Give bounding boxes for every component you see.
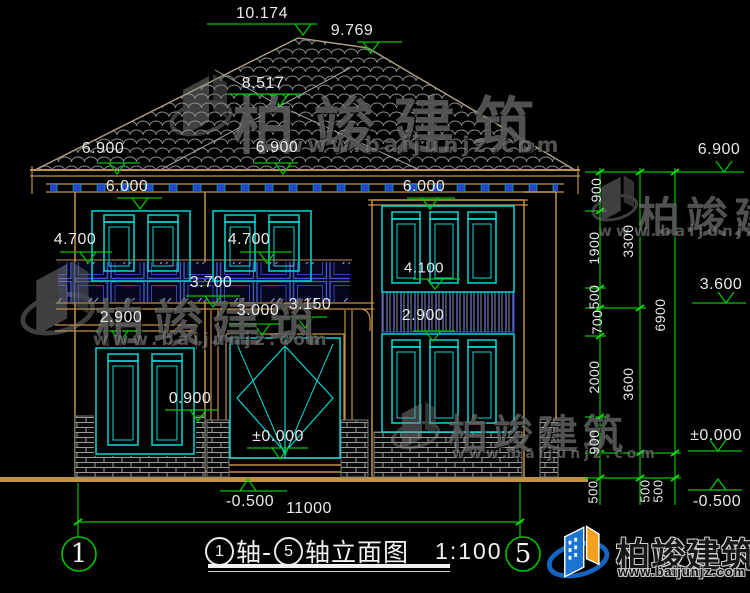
elevation-label-6000-right: 6.000 xyxy=(403,179,446,195)
elevation-label-eave-right: 6.900 xyxy=(698,142,741,158)
elevation-label-zero-right: ±0.000 xyxy=(690,428,742,444)
elevation-label-eave-mid: 6.900 xyxy=(256,140,299,156)
title-axis-bubble-1: 1 xyxy=(205,537,234,566)
dim-label-500d: 500 xyxy=(652,479,665,502)
elevation-label-3600-right: 3.600 xyxy=(700,277,743,293)
brand-logo-icon xyxy=(542,520,616,586)
dim-label-2000: 2000 xyxy=(587,360,601,393)
dim-label-1900: 1900 xyxy=(587,231,601,264)
elevation-label-4700-left: 4.700 xyxy=(54,232,97,248)
brand-url: www.baijunjz.com xyxy=(618,564,746,579)
elevation-drawing-canvas: 柏竣建筑 www.baijunjz.com 柏竣建筑 www.baijunjz.… xyxy=(0,0,750,593)
elevation-label-zero-center: ±0.000 xyxy=(252,429,304,445)
watermark-url: www.baijunjz.com xyxy=(284,133,563,157)
elevation-label-minus500-right: -0.500 xyxy=(693,494,741,510)
dim-label-500a: 500 xyxy=(587,285,601,310)
dim-label-900a: 900 xyxy=(589,178,603,203)
grid-bubble-5: 5 xyxy=(515,541,532,567)
watermark-url: www.baijunjz.com xyxy=(93,330,331,350)
elevation-label-6000-left: 6.000 xyxy=(106,179,149,195)
dim-label-total-width: 11000 xyxy=(286,501,332,517)
watermark-logo-icon xyxy=(388,394,442,458)
dim-label-6900: 6900 xyxy=(653,298,667,331)
elevation-label-eave-left: 6.900 xyxy=(82,141,125,157)
elevation-label-ridge: 10.174 xyxy=(236,6,288,22)
watermark-logo-icon xyxy=(14,252,99,347)
dim-label-700: 700 xyxy=(590,310,604,335)
dim-label-500b: 500 xyxy=(587,480,600,503)
title-underline-thin xyxy=(208,571,450,572)
dim-label-3600: 3600 xyxy=(621,367,635,400)
elevation-label-hip-mid: 8.517 xyxy=(242,76,285,92)
brand-stamp: 柏竣建筑 www.baijunjz.com xyxy=(542,520,750,590)
watermark-logo-icon xyxy=(165,66,235,146)
title-axis-bubble-5: 5 xyxy=(274,537,303,566)
ground-line xyxy=(0,477,588,482)
elevation-label-hip-right: 9.769 xyxy=(331,23,374,39)
title-underline-thick xyxy=(208,564,450,568)
elevation-label-0900: 0.900 xyxy=(169,391,212,407)
watermark-url: www.baijunjz.com xyxy=(452,446,659,462)
title-scale: 1:100 xyxy=(435,538,503,565)
elevation-label-3700: 3.700 xyxy=(190,275,233,291)
elevation-label-4100: 4.100 xyxy=(404,261,444,276)
elevation-label-2900-right: 2.900 xyxy=(402,308,445,324)
elevation-label-2900-left: 2.900 xyxy=(100,310,143,326)
dim-label-900b: 900 xyxy=(587,430,601,455)
elevation-label-4700-mid: 4.700 xyxy=(228,232,271,248)
dim-label-3300: 3300 xyxy=(621,224,635,257)
elevation-label-minus500-center: -0.500 xyxy=(226,494,274,510)
elevation-label-3150: 3.150 xyxy=(289,297,332,313)
elevation-label-3000: 3.000 xyxy=(237,303,280,319)
grid-bubble-1: 1 xyxy=(71,541,88,567)
